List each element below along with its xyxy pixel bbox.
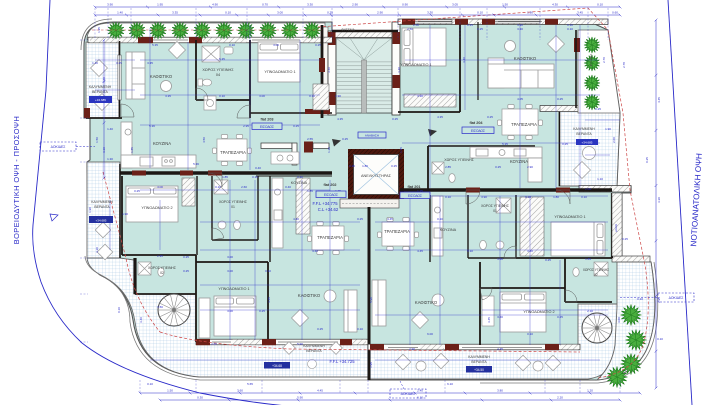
svg-text:1.90: 1.90 [527,11,533,15]
svg-text:1.90: 1.90 [88,207,92,213]
svg-text:ΦΥΤΕΜΑ: ΦΥΤΕΜΑ [341,28,355,32]
svg-text:ΔΟΚΙΔΕΣ: ΔΟΚΙΔΕΣ [51,145,66,149]
svg-text:flat 203: flat 203 [260,118,273,122]
svg-text:5.90: 5.90 [369,297,373,303]
svg-text:ΚΑΘΙΣΤΙΚΟ: ΚΑΘΙΣΤΙΚΟ [415,300,438,305]
svg-text:6.10: 6.10 [417,396,423,400]
svg-text:0.25: 0.25 [477,27,483,31]
svg-text:3.80: 3.80 [497,389,503,393]
svg-text:0.25: 0.25 [595,107,601,111]
svg-text:0.40: 0.40 [255,166,261,170]
svg-text:4.35: 4.35 [337,117,343,121]
svg-text:3.30: 3.30 [417,94,423,98]
svg-text:2.85: 2.85 [445,165,451,169]
svg-text:01: 01 [231,205,235,209]
svg-text:0.10: 0.10 [357,327,363,331]
svg-text:ΕΙΣΟΔΟΣ: ΕΙΣΟΔΟΣ [324,193,338,197]
svg-text:0.40: 0.40 [285,185,291,189]
svg-text:1.25: 1.25 [399,147,403,153]
svg-text:4.45: 4.45 [317,389,323,393]
svg-text:1.40: 1.40 [117,11,123,15]
svg-text:3.05: 3.05 [452,3,458,7]
svg-text:3.40: 3.40 [397,67,401,73]
svg-text:2.90: 2.90 [377,11,383,15]
svg-text:5.35: 5.35 [219,57,225,61]
svg-text:4.45: 4.45 [387,217,393,221]
svg-text:0.10: 0.10 [477,11,483,15]
svg-text:1.10: 1.10 [597,177,603,181]
svg-text:0.10: 0.10 [597,3,603,7]
svg-text:2.90: 2.90 [335,94,341,98]
svg-text:3.40: 3.40 [327,67,331,73]
svg-text:0.25: 0.25 [391,164,397,168]
svg-text:μπάζα: μπάζα [614,224,618,233]
svg-text:0.10: 0.10 [215,185,221,189]
svg-text:0.25: 0.25 [183,269,189,273]
svg-text:ΤΡΑΠΕΖΑΡΙΑ: ΤΡΑΠΕΖΑΡΙΑ [317,235,343,240]
svg-text:0.25: 0.25 [392,117,398,121]
svg-text:0.30: 0.30 [197,396,203,400]
svg-text:2.50: 2.50 [407,27,413,31]
svg-text:0.25: 0.25 [562,142,568,146]
svg-text:ΥΠΝΟΔΩΜΑΤΙΟ 1: ΥΠΝΟΔΩΜΑΤΙΟ 1 [554,215,585,219]
svg-text:ΧΩΡΟΣ ΥΓΙΕΙΝΗΣ: ΧΩΡΟΣ ΥΓΙΕΙΝΗΣ [583,268,609,272]
svg-text:ΤΡΑΠΕΖΑΡΙΑ: ΤΡΑΠΕΖΑΡΙΑ [511,122,537,127]
svg-text:3.90: 3.90 [107,3,113,7]
svg-text:ΧΩΡΟΣ ΥΓΙΕΙΝΗΣ: ΧΩΡΟΣ ΥΓΙΕΙΝΗΣ [481,204,509,208]
svg-text:ΚΟΥΖΙΝΑ: ΚΟΥΖΙΝΑ [440,228,457,232]
svg-text:4.90: 4.90 [212,3,218,7]
svg-text:5.35: 5.35 [502,142,508,146]
svg-text:2.70: 2.70 [602,57,606,63]
svg-text:3.45: 3.45 [267,297,271,303]
svg-text:4.40: 4.40 [293,217,299,221]
svg-text:0.25: 0.25 [545,258,551,262]
svg-text:1.50: 1.50 [95,137,99,143]
svg-text:4.60: 4.60 [102,77,106,83]
svg-text:2.90: 2.90 [409,347,415,351]
svg-text:5.36: 5.36 [193,162,199,166]
svg-text:1.80: 1.80 [362,164,368,168]
svg-text:ΕΙΣΟΔΟΣ: ΕΙΣΟΔΟΣ [408,194,422,198]
svg-text:flat 202: flat 202 [323,183,336,187]
svg-text:3.00: 3.00 [617,317,621,323]
svg-text:ΥΠΝΟΔΩΜΑΤΙΟ 1: ΥΠΝΟΔΩΜΑΤΙΟ 1 [264,70,295,74]
svg-text:3.00: 3.00 [277,11,283,15]
svg-text:0.25: 0.25 [183,255,189,259]
svg-text:ΚΑΛΥΜΜΕΝΗ: ΚΑΛΥΜΜΕΝΗ [573,127,595,131]
svg-text:0.25: 0.25 [259,309,265,313]
svg-text:1.30: 1.30 [107,157,113,161]
svg-text:2.00: 2.00 [585,187,591,191]
svg-text:ΚΑΛΥΜΜΕΝΗ: ΚΑΛΥΜΜΕΝΗ [303,344,325,348]
svg-text:C.L +34.62: C.L +34.62 [318,207,339,212]
svg-text:0.25: 0.25 [342,137,348,141]
svg-text:ΑΝΕΛΚΥΣΤΗΡΑΣ: ΑΝΕΛΚΥΣΤΗΡΑΣ [361,174,392,178]
svg-text:flat 201: flat 201 [407,185,420,189]
svg-text:0.90: 0.90 [402,3,408,7]
svg-text:04: 04 [216,73,220,77]
svg-text:ΒΕΡΑΝΤΑ: ΒΕΡΑΝΤΑ [576,132,592,136]
svg-text:0.10: 0.10 [581,195,587,199]
svg-text:0.70: 0.70 [262,3,268,7]
svg-text:1.95: 1.95 [97,27,101,33]
svg-text:0.10: 0.10 [445,195,451,199]
svg-text:0.25: 0.25 [315,43,321,47]
svg-text:3.00: 3.00 [273,43,279,47]
svg-text:02: 02 [160,271,164,275]
svg-text:5.90: 5.90 [297,396,303,400]
svg-text:0.10: 0.10 [229,43,235,47]
svg-text:0.25: 0.25 [357,217,363,221]
svg-text:0.25: 0.25 [134,189,140,193]
svg-text:0.25: 0.25 [645,157,649,163]
svg-text:0.10: 0.10 [525,195,531,199]
svg-text:4.40: 4.40 [312,249,318,253]
svg-text:2.90: 2.90 [527,165,533,169]
svg-text:1.80: 1.80 [553,195,559,199]
svg-text:2.50: 2.50 [413,23,419,27]
svg-text:0.25: 0.25 [293,124,299,128]
svg-text:2.90: 2.90 [352,3,358,7]
svg-text:ΕΙΣΟΔΟΣ: ΕΙΣΟΔΟΣ [471,129,485,133]
svg-text:2.20: 2.20 [557,396,563,400]
svg-text:3.50: 3.50 [157,305,163,309]
svg-text:ΚΑΛΥΜΜΕΝΗ: ΚΑΛΥΜΜΕΝΗ [468,355,490,359]
svg-text:0.10: 0.10 [117,307,121,313]
svg-text:ΚΑΛΥΜΜΕΝΗ: ΚΑΛΥΜΜΕΝΗ [89,85,112,89]
svg-text:3.60: 3.60 [237,389,243,393]
svg-text:1.85: 1.85 [222,175,228,179]
svg-text:ΥΠΝΟΔΩΜΑΤΙΟ 1: ΥΠΝΟΔΩΜΑΤΙΟ 1 [218,287,249,291]
svg-text:ΧΩΡΟΣ ΥΓΙΕΙΝΗΣ: ΧΩΡΟΣ ΥΓΙΕΙΝΗΣ [444,158,474,162]
svg-text:3.00: 3.00 [157,185,163,189]
svg-text:ΚΟΥΖΙΝΑ: ΚΟΥΖΙΝΑ [291,181,308,185]
svg-text:ΒΟΡΕΙΟΔΥΤΙΚΗ ΟΨΗ - ΠΡΟΣΟΨΗ: ΒΟΡΕΙΟΔΥΤΙΚΗ ΟΨΗ - ΠΡΟΣΟΨΗ [12,116,21,244]
svg-text:1.50: 1.50 [167,389,173,393]
svg-text:ΧΩΡΟΣ ΥΓΙΕΙΝΗΣ: ΧΩΡΟΣ ΥΓΙΕΙΝΗΣ [148,266,176,270]
svg-text:4.45: 4.45 [497,347,503,351]
svg-text:1.85: 1.85 [585,257,591,261]
svg-text:2.95: 2.95 [157,254,163,258]
svg-text:4.50: 4.50 [202,137,206,143]
svg-text:0.25: 0.25 [622,237,628,241]
svg-text:2.55: 2.55 [307,137,313,141]
svg-text:6.00: 6.00 [427,332,433,336]
svg-text:0.10: 0.10 [265,269,271,273]
svg-text:ΧΩΡΟΣ ΥΓΙΕΙΝΗΣ: ΧΩΡΟΣ ΥΓΙΕΙΝΗΣ [219,200,247,204]
svg-text:2.10: 2.10 [587,309,593,313]
svg-text:0.40: 0.40 [297,175,303,179]
svg-text:3.00: 3.00 [259,94,265,98]
svg-text:4.35: 4.35 [437,115,443,119]
svg-text:1.85: 1.85 [130,147,134,153]
svg-text:2.60: 2.60 [241,185,247,189]
svg-text:ΚΑΘΙΣΤΙΚΟ: ΚΑΘΙΣΤΙΚΟ [514,56,537,61]
svg-text:ΑΝΑΒΑΣΗ: ΑΝΑΒΑΣΗ [365,134,379,138]
svg-text:3.45: 3.45 [577,11,583,15]
svg-text:0.10: 0.10 [309,94,315,98]
svg-text:4.45: 4.45 [417,249,423,253]
svg-text:ΤΡΑΠΕΖΑΡΙΑ: ΤΡΑΠΕΖΑΡΙΑ [384,229,410,234]
svg-text:0.25: 0.25 [495,165,501,169]
svg-text:2.78: 2.78 [622,62,626,68]
svg-text:0.10: 0.10 [252,175,258,179]
svg-text:ΥΠΝΟΔΩΜΑΤΙΟ 1: ΥΠΝΟΔΩΜΑΤΙΟ 1 [400,63,431,67]
svg-text:0.25: 0.25 [349,164,355,168]
svg-text:3.35: 3.35 [172,11,178,15]
svg-text:02: 02 [594,273,598,277]
svg-text:ΤΡΑΠΕΖΑΡΙΑ: ΤΡΑΠΕΖΑΡΙΑ [220,150,246,155]
svg-text:0.25: 0.25 [317,327,323,331]
svg-text:3.45: 3.45 [487,317,491,323]
svg-text:0.25: 0.25 [116,61,122,65]
svg-text:1.25: 1.25 [327,147,331,153]
svg-text:3.35: 3.35 [165,94,171,98]
svg-text:4.30: 4.30 [552,3,558,7]
svg-text:0.10: 0.10 [147,382,153,386]
svg-text:0.10: 0.10 [567,27,573,31]
svg-text:1.40: 1.40 [92,61,98,65]
svg-text:1.85: 1.85 [307,189,313,193]
svg-text:3.90: 3.90 [481,195,487,199]
svg-text:3.10: 3.10 [102,147,106,153]
svg-text:6.10: 6.10 [447,382,453,386]
svg-text:1.95: 1.95 [369,362,373,368]
svg-text:ΕΙΣΟΔΟΣ: ΕΙΣΟΔΟΣ [260,125,274,129]
svg-text:1.95: 1.95 [157,3,163,7]
svg-text:ΚΑΘΙΣΤΙΚΟ: ΚΑΘΙΣΤΙΚΟ [150,74,173,79]
svg-text:3.30: 3.30 [307,3,313,7]
svg-text:F.F.L +34.775: F.F.L +34.775 [312,201,338,206]
svg-text:ΚΑΘΙΣΤΙΚΟ: ΚΑΘΙΣΤΙΚΟ [298,293,321,298]
svg-text:0.25: 0.25 [327,11,333,15]
svg-text:3.40: 3.40 [139,317,143,323]
svg-text:ΥΠΝΟΔΩΜΑΤΙΟ 2: ΥΠΝΟΔΩΜΑΤΙΟ 2 [141,206,172,210]
svg-text:4.45: 4.45 [657,97,661,103]
svg-text:1.20: 1.20 [587,389,593,393]
svg-text:ΒΕΡΑΝΤΑ: ΒΕΡΑΝΤΑ [94,205,110,209]
svg-text:ΒΕΡΑΝΤΑ: ΒΕΡΑΝΤΑ [92,90,108,94]
svg-text:0.10: 0.10 [657,337,663,341]
svg-text:+34.50: +34.50 [474,368,484,372]
svg-text:1.90: 1.90 [605,127,611,131]
svg-text:01: 01 [493,209,497,213]
svg-text:2.00: 2.00 [612,137,616,143]
svg-text:0.10: 0.10 [225,11,231,15]
svg-text:0.10: 0.10 [467,249,473,253]
svg-text:flat 204: flat 204 [469,121,483,125]
svg-text:1.40: 1.40 [107,127,113,131]
svg-text:ΚΟΥΖΙΝΑ: ΚΟΥΖΙΝΑ [153,141,171,146]
svg-text:3.30: 3.30 [427,11,433,15]
svg-text:1.50: 1.50 [502,3,508,7]
svg-text:0.25: 0.25 [557,97,563,101]
svg-text:3.30: 3.30 [657,197,661,203]
svg-text:ΒΕΡΑΝΤΑ: ΒΕΡΑΝΤΑ [471,360,487,364]
svg-text:ΚΑΛΥΜΜΕΝΗ: ΚΑΛΥΜΜΕΝΗ [91,200,113,204]
svg-text:ΚΟΥΖΙΝΑ: ΚΟΥΖΙΝΑ [510,159,528,164]
svg-text:2.95: 2.95 [243,124,249,128]
svg-text:0.60: 0.60 [612,11,618,15]
svg-text:0.25: 0.25 [487,115,493,119]
svg-text:2.55: 2.55 [211,342,217,346]
svg-text:3.20: 3.20 [95,247,99,253]
svg-text:ΒΕΡΑΝΤΑ: ΒΕΡΑΝΤΑ [306,349,322,353]
svg-text:1.90: 1.90 [122,212,128,216]
svg-text:5.65: 5.65 [247,382,253,386]
svg-text:F.F.L +34.725: F.F.L +34.725 [329,359,355,364]
svg-text:5.35: 5.35 [152,43,158,47]
svg-text:0.25: 0.25 [467,23,473,27]
svg-text:0.10: 0.10 [219,94,225,98]
svg-text:+34.68: +34.68 [272,364,282,368]
svg-text:0.10: 0.10 [567,23,573,27]
svg-text:ΦΥΤΕΜΑ: ΦΥΤΕΜΑ [589,54,593,67]
svg-text:+34.685: +34.685 [95,98,106,102]
svg-text:+34.685: +34.685 [96,218,107,222]
svg-text:ΧΩΡΟΣ ΥΓΙΕΙΝΗΣ: ΧΩΡΟΣ ΥΓΙΕΙΝΗΣ [202,68,234,72]
svg-text:ΔΟΚΙΔΕΣ: ΔΟΚΙΔΕΣ [401,392,416,396]
svg-text:ΔΟΚΙΔΕΣ: ΔΟΚΙΔΕΣ [669,296,684,300]
svg-text:ΥΠΝΟΔΩΜΑΤΙΟ 2: ΥΠΝΟΔΩΜΑΤΙΟ 2 [523,310,554,314]
svg-text:+34.685: +34.685 [582,141,593,145]
